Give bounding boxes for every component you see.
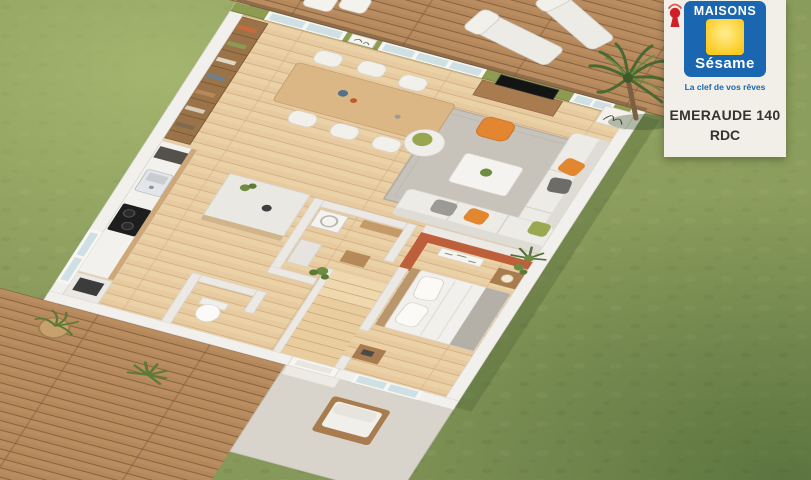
brand-tagline: La clef de vos rêves: [685, 82, 766, 92]
floor-label: RDC: [710, 127, 740, 143]
brand-name: MAISONS: [694, 4, 757, 18]
keyhole-glyph: [664, 0, 686, 30]
model-name: EMERAUDE 140: [670, 107, 781, 123]
brand-script: Sésame: [695, 55, 755, 72]
floorplan-scene: MAISONS Sésame La clef de vos rêves EMER…: [0, 0, 811, 480]
brand-logo: MAISONS Sésame: [684, 1, 766, 77]
keyhole-icon: [706, 19, 744, 55]
info-card: MAISONS Sésame La clef de vos rêves EMER…: [664, 0, 786, 157]
